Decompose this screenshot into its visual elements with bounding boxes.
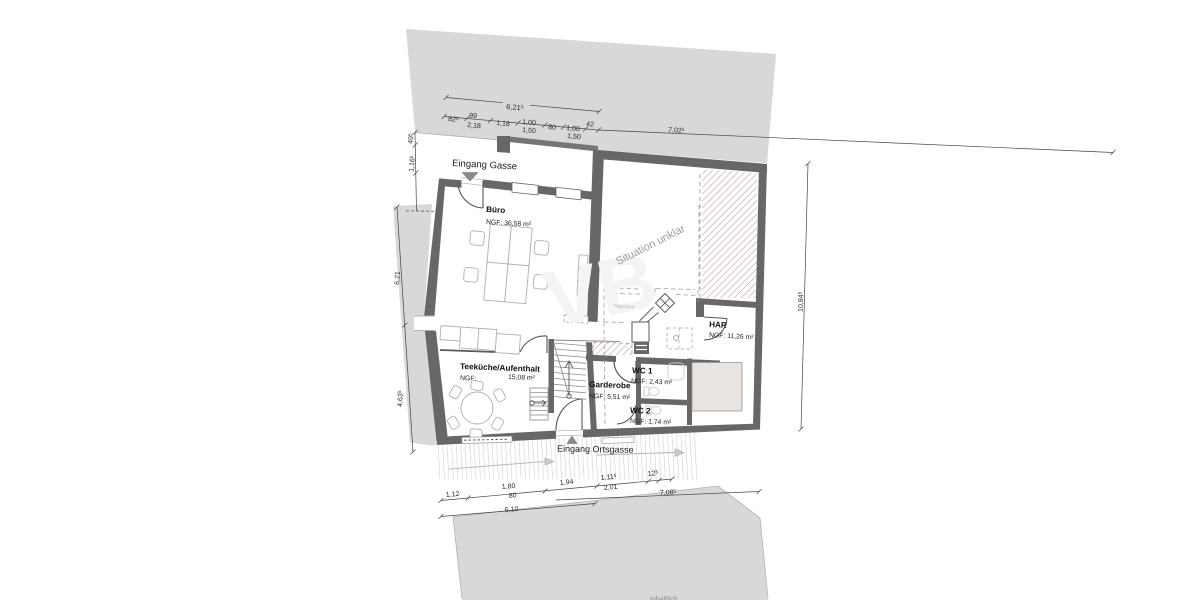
svg-text:NGF: 2,43 m²: NGF: 2,43 m² [631,378,673,386]
svg-text:NGF: 1,74 m²: NGF: 1,74 m² [630,418,672,426]
svg-text:42: 42 [586,121,594,129]
svg-text:1,50: 1,50 [522,127,536,135]
svg-text:2,01: 2,01 [604,484,618,492]
svg-text:99: 99 [469,113,477,121]
svg-text:HAR: HAR [709,320,727,330]
svg-text:1,94: 1,94 [560,479,574,487]
svg-text:Büro: Büro [486,205,506,215]
svg-text:80: 80 [548,124,556,132]
svg-text:1,00: 1,00 [566,125,580,133]
svg-text:Garderobe: Garderobe [589,380,631,390]
svg-text:Inhaltlich: Inhaltlich [650,597,678,600]
svg-text:6,21: 6,21 [394,271,402,285]
svg-text:15,08 m²: 15,08 m² [508,374,536,382]
svg-text:NGF: 5,51 m²: NGF: 5,51 m² [589,393,631,401]
svg-text:WC 2: WC 2 [630,406,651,416]
svg-text:6,10: 6,10 [505,506,519,514]
svg-text:1,18: 1,18 [496,120,510,128]
svg-text:NGF:: NGF: [460,375,477,383]
svg-text:WC 1: WC 1 [632,366,653,376]
svg-text:1,00: 1,00 [522,119,536,127]
svg-text:2,18: 2,18 [467,122,481,130]
svg-text:80: 80 [509,492,517,500]
svg-text:1,50: 1,50 [567,133,581,141]
svg-text:Eingang Ortsgasse: Eingang Ortsgasse [557,444,634,455]
svg-text:1,12: 1,12 [446,491,460,499]
svg-text:1,80: 1,80 [502,483,516,491]
